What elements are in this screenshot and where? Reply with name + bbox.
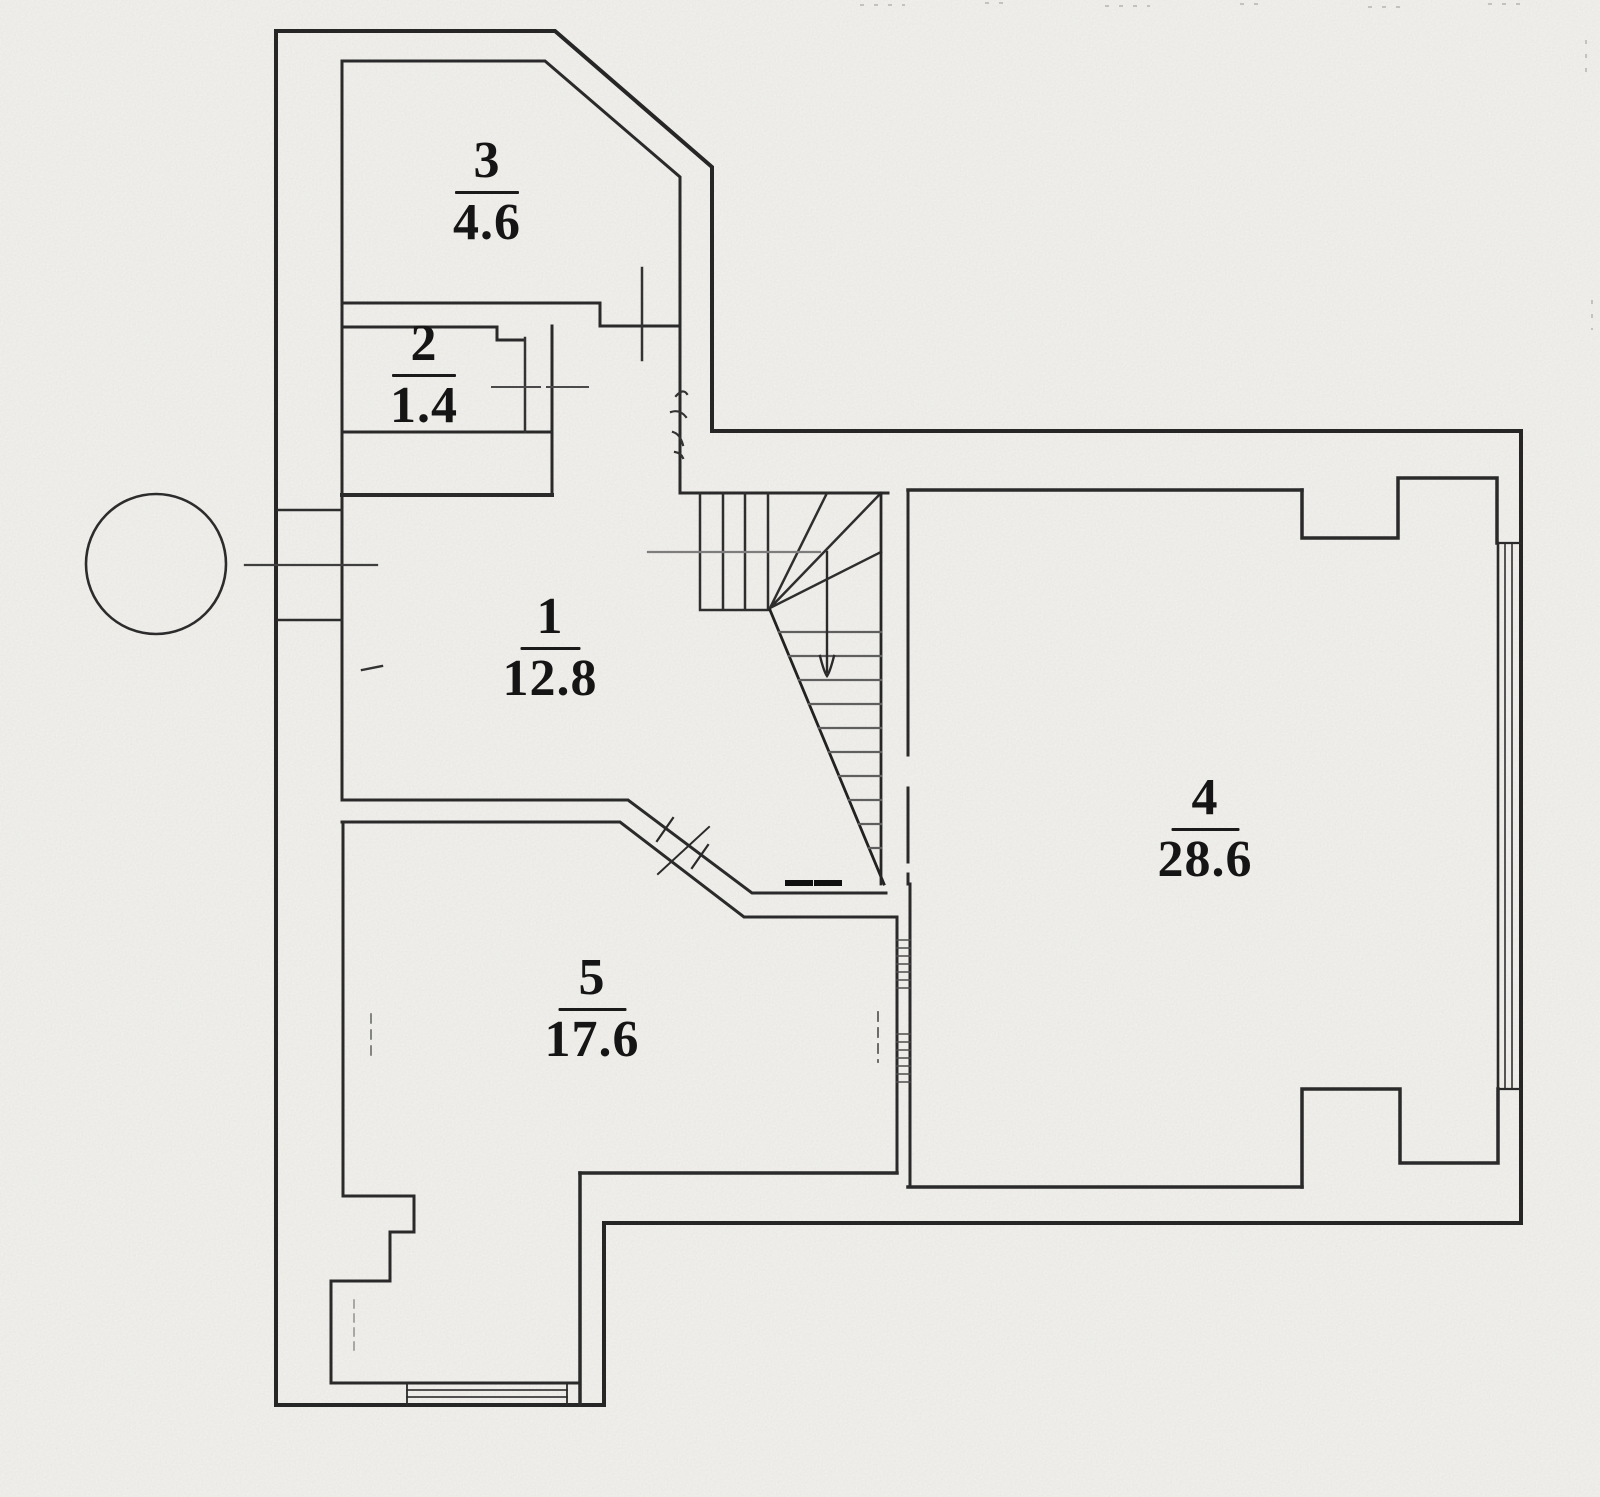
room-area: 1.4: [390, 380, 458, 432]
room-label-3: 3 4.6: [453, 135, 521, 249]
room-area: 28.6: [1158, 834, 1253, 886]
room-number: 2: [411, 318, 438, 370]
room-number: 4: [1192, 772, 1219, 824]
floor-plan-drawing: [0, 0, 1600, 1497]
room-label-5: 5 17.6: [545, 952, 640, 1066]
paper-grain: [0, 0, 1600, 1497]
room-number: 1: [537, 591, 564, 643]
room-area: 4.6: [453, 197, 521, 249]
room-number: 3: [474, 135, 501, 187]
room-label-2: 2 1.4: [390, 318, 458, 432]
room-area: 12.8: [503, 653, 598, 705]
floor-plan: 3 4.6 2 1.4 1 12.8 4 28.6 5 17.6: [0, 0, 1600, 1497]
room-label-4: 4 28.6: [1158, 772, 1253, 886]
room-label-1: 1 12.8: [503, 591, 598, 705]
room-number: 5: [579, 952, 606, 1004]
wall-window-hatch-upper: [897, 940, 910, 988]
wall-window-hatch-lower: [897, 1034, 910, 1082]
room-area: 17.6: [545, 1014, 640, 1066]
